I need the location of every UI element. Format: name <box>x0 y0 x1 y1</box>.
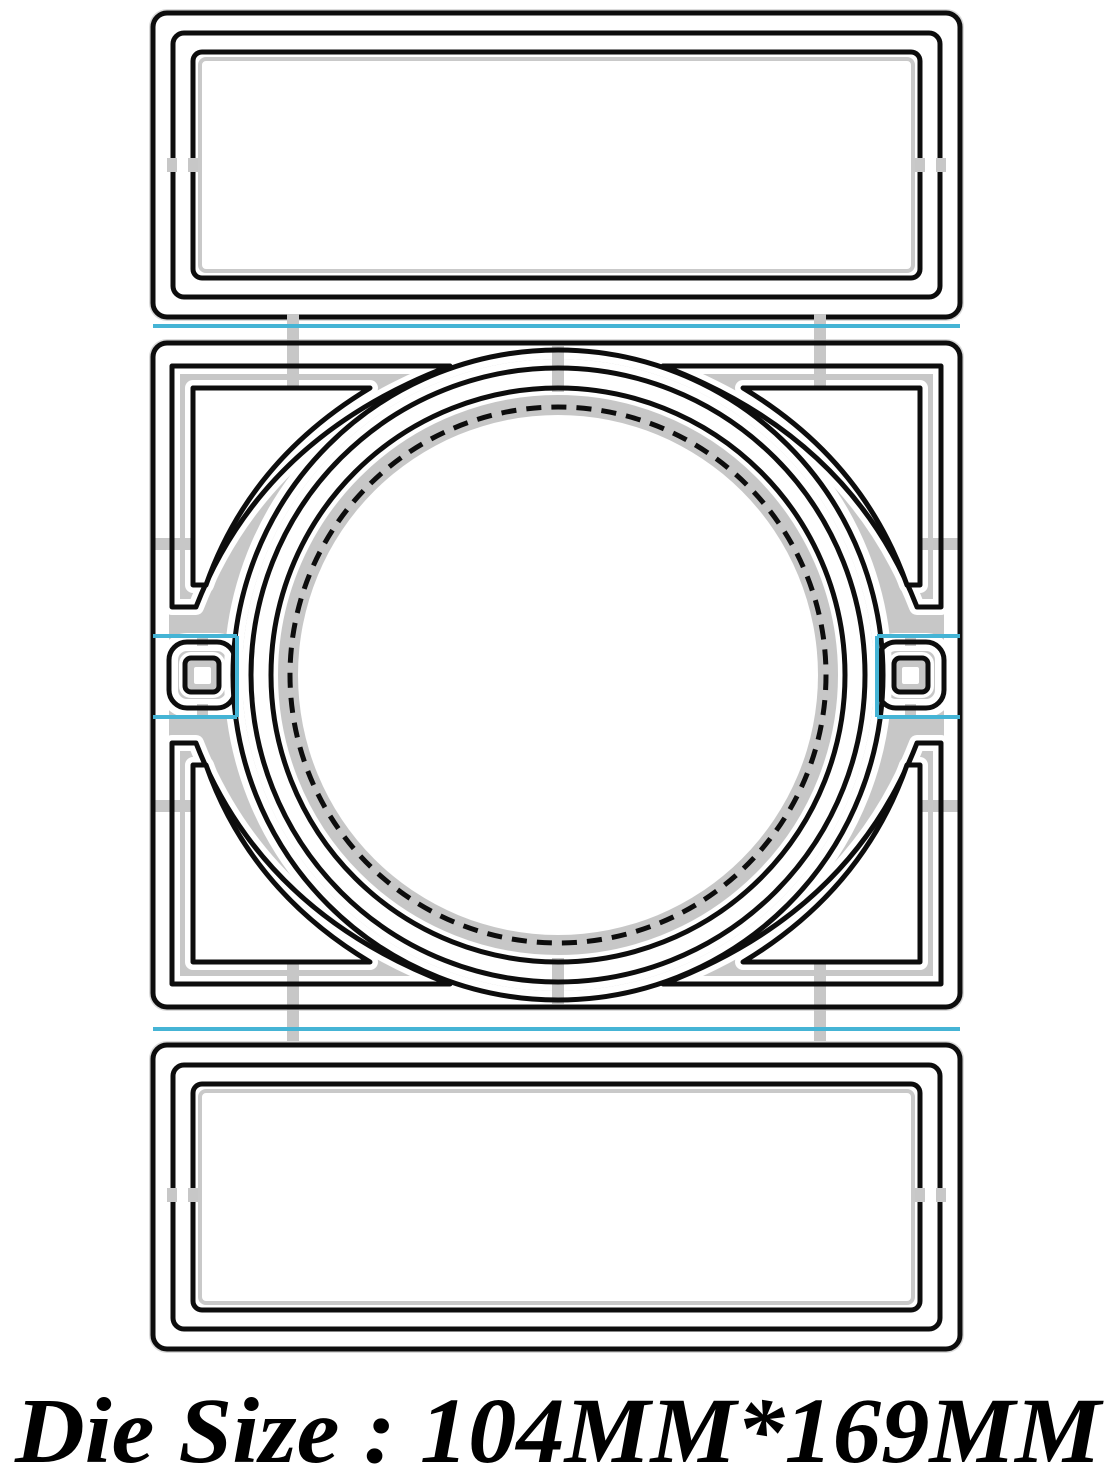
tab-mark <box>188 158 198 172</box>
circle-aperture <box>298 415 818 935</box>
tab-mark <box>916 538 960 550</box>
tab-mark <box>188 1188 198 1202</box>
middle-circle-die <box>149 314 964 1044</box>
bottom-rectangle-die <box>149 1041 964 1353</box>
tab-mark <box>936 1188 946 1202</box>
product-image: Die Size : 104MM*169MM <box>0 0 1120 1477</box>
tab-mark <box>916 800 960 812</box>
die-size-caption: Die Size : 104MM*169MM <box>14 1380 1104 1477</box>
tab-mark <box>167 158 177 172</box>
top-rectangle-die <box>149 9 964 321</box>
die-cut-illustration: Die Size : 104MM*169MM <box>0 0 1120 1477</box>
tab-mark <box>153 538 197 550</box>
tab-mark <box>936 158 946 172</box>
inner-cut-line <box>193 52 920 278</box>
tab-mark <box>167 1188 177 1202</box>
tab-mark <box>915 1188 925 1202</box>
square-emboss-center <box>902 667 919 684</box>
tab-mark <box>814 962 826 1044</box>
tab-mark <box>287 962 299 1044</box>
tab-mark <box>153 800 197 812</box>
tab-mark <box>915 158 925 172</box>
square-emboss-center <box>194 667 211 684</box>
inner-cut-line <box>193 1084 920 1310</box>
